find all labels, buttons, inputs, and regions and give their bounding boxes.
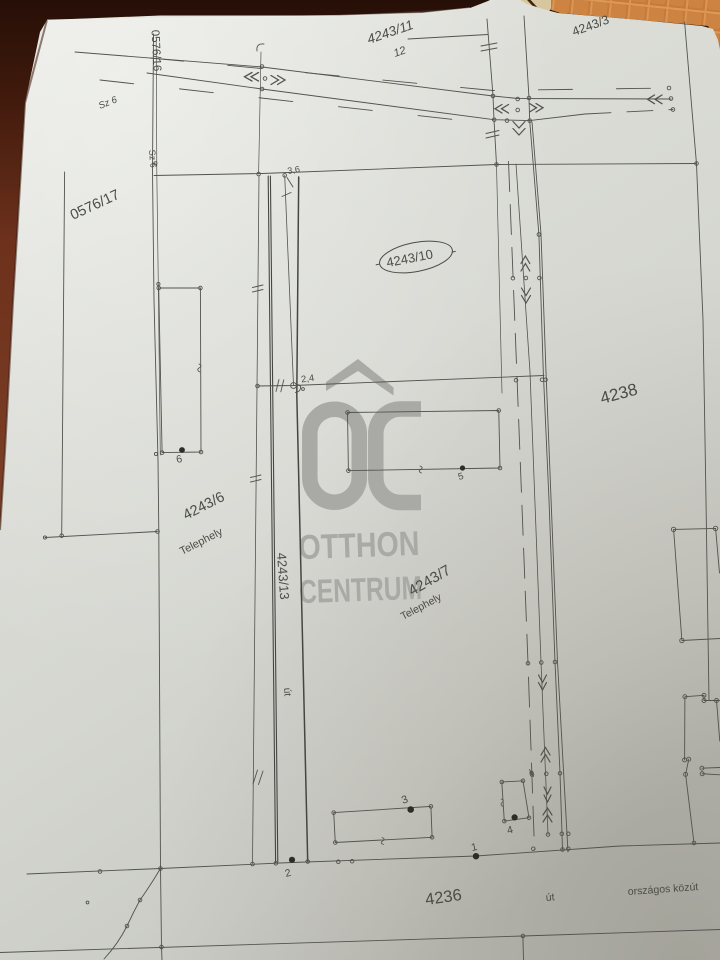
svg-text:út: út (281, 687, 293, 696)
svg-text:OTTHON: OTTHON (298, 525, 420, 567)
svg-text:CENTRUM: CENTRUM (298, 569, 422, 610)
svg-text:3,6: 3,6 (287, 164, 301, 176)
svg-text:0576/16: 0576/16 (149, 30, 163, 72)
svg-text:út: út (545, 891, 555, 904)
svg-text:2,4: 2,4 (300, 373, 315, 386)
svg-text:Sz 6: Sz 6 (147, 149, 159, 168)
